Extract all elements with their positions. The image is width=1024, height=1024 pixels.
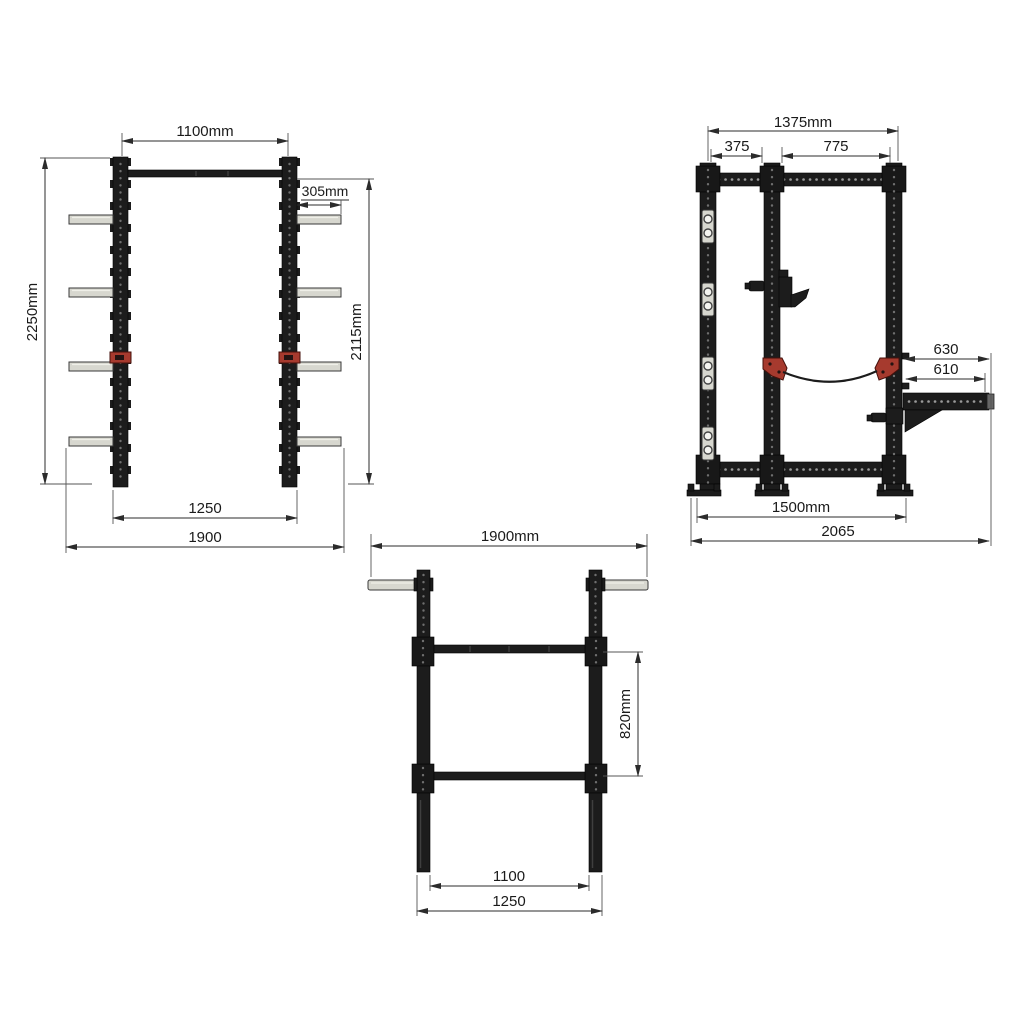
pullup-grip-right <box>602 580 648 590</box>
bar-clamp-tab <box>414 578 417 591</box>
pin <box>902 383 909 389</box>
weight-pegs-left <box>69 215 113 446</box>
dim-label: 1250 <box>188 500 221 517</box>
dim-label: 1900mm <box>481 528 539 545</box>
drawing-canvas: 1100mm 305mm 2250mm 2115mm 1250 <box>0 0 1024 1024</box>
bottom-crossmember <box>700 462 902 477</box>
right-upright-plan <box>589 570 602 872</box>
dim-label: 305mm <box>302 183 349 199</box>
dim-front-pullup-width: 1100mm <box>122 123 288 156</box>
gusset <box>905 410 942 432</box>
dim-side-front-spacing: 775 <box>782 138 890 163</box>
dim-front-overall-height: 2250mm <box>24 158 110 484</box>
bar-clamp-tab <box>602 578 605 591</box>
side-view: 1375mm 375 775 630 610 <box>687 114 994 546</box>
dim-front-peg-length: 305mm <box>297 183 349 214</box>
dim-label: 375 <box>724 138 749 155</box>
pullup-grip-left <box>368 580 417 590</box>
dim-label: 610 <box>933 361 958 378</box>
dim-top-overall-width: 1900mm <box>371 528 647 577</box>
feet <box>687 484 913 496</box>
dim-label: 775 <box>823 138 848 155</box>
dim-label: 1100mm <box>176 123 233 140</box>
pin <box>902 353 909 359</box>
safety-strap <box>783 371 877 382</box>
dim-label: 1250 <box>492 893 525 910</box>
dim-top-crossmember-spacing: 820mm <box>603 652 643 776</box>
dim-label: 820mm <box>617 689 634 739</box>
crossmember-2 <box>430 772 589 780</box>
dim-label: 1100 <box>493 868 525 885</box>
bar-clamp-tab <box>586 578 589 591</box>
dim-label: 2065 <box>821 523 854 540</box>
dim-label: 1375mm <box>774 114 832 131</box>
dim-side-base-depth: 1500mm <box>697 498 906 523</box>
top-crossmember <box>700 173 902 186</box>
dim-front-base-width: 1250 <box>113 490 297 524</box>
strap-bracket-left <box>110 352 131 363</box>
front-view: 1100mm 305mm 2250mm 2115mm 1250 <box>24 123 374 553</box>
dim-side-spotter-usable: 610 <box>906 361 985 392</box>
dim-top-inner-width: 1100 <box>430 868 589 891</box>
left-upright-plan <box>417 570 430 872</box>
dim-label: 1500mm <box>772 499 830 516</box>
weight-pegs-right <box>297 215 341 446</box>
dim-side-rear-spacing: 375 <box>711 138 762 163</box>
top-view: 1900mm 820mm 1100 1250 <box>368 528 648 916</box>
pullup-bar <box>128 170 282 177</box>
bar-clamp-tab <box>430 578 433 591</box>
dim-side-overall-depth: 2065 <box>691 498 989 546</box>
strap-bracket-right <box>279 352 300 363</box>
dim-label: 1900 <box>188 529 221 546</box>
rack-dimension-drawing: 1100mm 305mm 2250mm 2115mm 1250 <box>0 0 1024 1024</box>
dim-label: 2115mm <box>348 303 365 360</box>
dim-label: 2250mm <box>24 283 41 341</box>
dim-label: 630 <box>933 341 958 358</box>
